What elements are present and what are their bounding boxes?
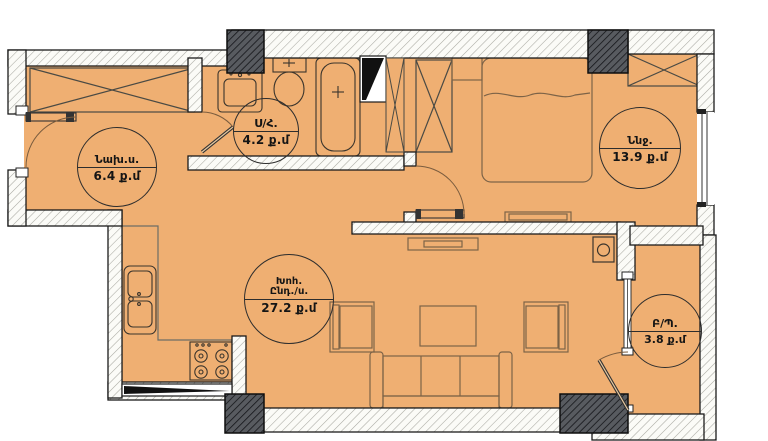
room-area: 6.4 ք.մ xyxy=(78,168,156,207)
column-bottom-right xyxy=(560,394,628,433)
room-name-line2: Ընդ./ս. xyxy=(270,287,308,298)
room-area: 4.2 ք.մ xyxy=(234,132,298,164)
column-bottom-left xyxy=(225,394,264,433)
room-label-living-kitchen: Խոհ. Ընդ./ս. 27.2 ք.մ xyxy=(244,254,334,344)
column-top-right xyxy=(588,30,628,73)
room-label-balcony: Բ/Պ. 3.8 ք.մ xyxy=(628,294,702,368)
room-label-bedroom: Ննջ. 13.9 ք.մ xyxy=(599,107,681,189)
room-name: Բ/Պ. xyxy=(629,295,701,332)
floor-plan-drawing xyxy=(0,0,768,441)
kitchen-window xyxy=(122,384,232,396)
floor-plan: Նախ.ս. 6.4 ք.մ Ս/Հ. 4.2 ք.մ Ննջ. 13.9 ք.… xyxy=(0,0,768,441)
bedroom-wardrobe xyxy=(416,60,452,152)
room-label-bathroom: Ս/Հ. 4.2 ք.մ xyxy=(233,98,299,164)
room-name: Նախ.ս. xyxy=(78,128,156,168)
room-area: 27.2 ք.մ xyxy=(245,300,333,344)
room-label-hallway: Նախ.ս. 6.4 ք.մ xyxy=(77,127,157,207)
room-name: Խոհ. Ընդ./ս. xyxy=(245,255,333,300)
bedroom-window xyxy=(697,109,714,207)
column-top-left xyxy=(227,30,264,73)
bedroom-closet xyxy=(628,54,700,86)
room-area: 13.9 ք.մ xyxy=(600,149,680,189)
room-area: 3.8 ք.մ xyxy=(629,332,701,368)
hall-wardrobe xyxy=(30,68,194,112)
room-name: Ննջ. xyxy=(600,108,680,149)
room-name: Ս/Հ. xyxy=(234,99,298,132)
